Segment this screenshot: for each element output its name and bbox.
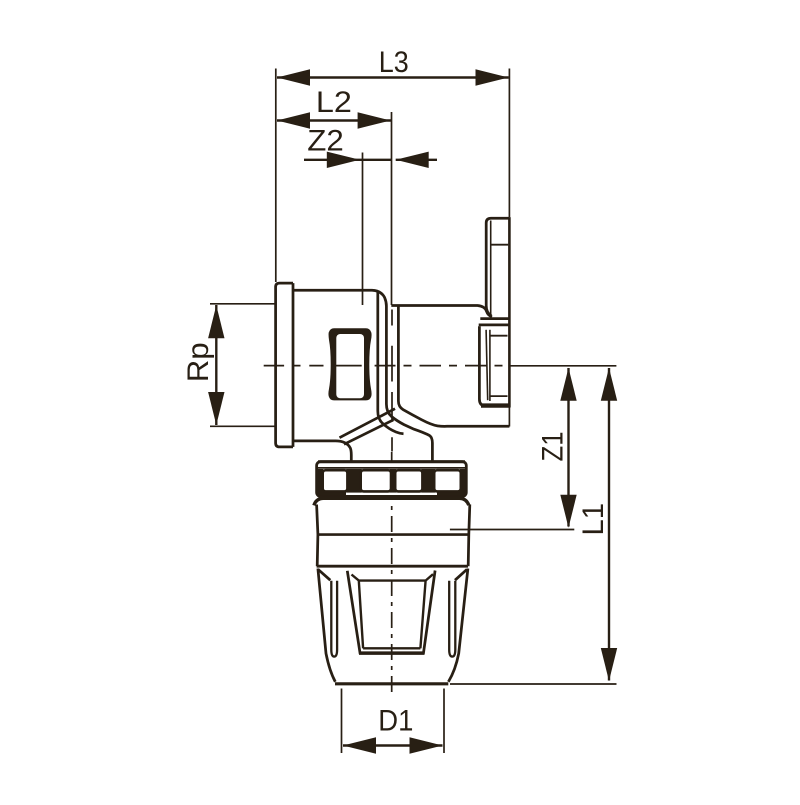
svg-text:L2: L2 [316, 86, 352, 119]
svg-text:Rp: Rp [182, 342, 215, 382]
svg-text:Z2: Z2 [307, 125, 344, 158]
svg-text:D1: D1 [378, 705, 413, 738]
svg-text:L1: L1 [577, 503, 610, 536]
svg-text:Z1: Z1 [536, 432, 569, 462]
svg-text:L3: L3 [379, 46, 409, 79]
